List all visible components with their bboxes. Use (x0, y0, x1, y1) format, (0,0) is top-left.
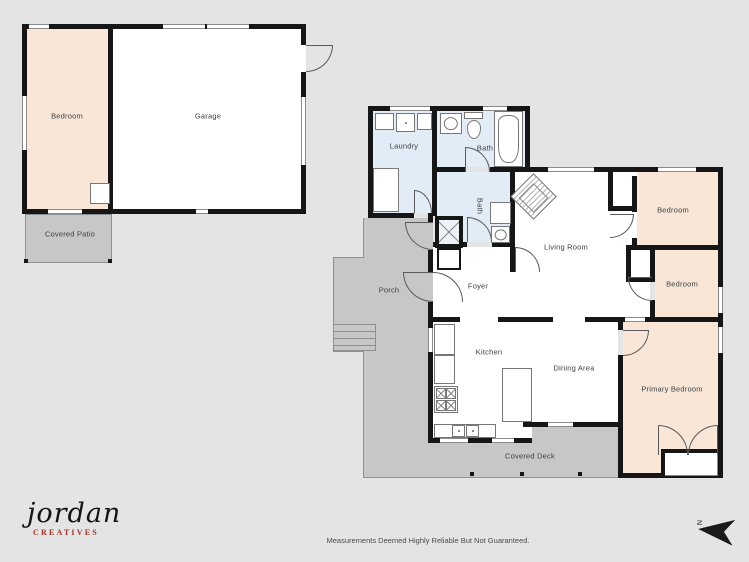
burner (446, 400, 456, 411)
covered-patio-area (25, 214, 112, 263)
wall (428, 213, 433, 222)
floor-plan: Bedroom Garage Covered Patio Laundry Bat… (0, 0, 749, 562)
wall (437, 167, 465, 172)
window (548, 167, 594, 172)
wall (432, 106, 437, 216)
window (428, 328, 433, 352)
burner (436, 400, 446, 411)
room-label-primary-bedroom: Primary Bedroom (641, 385, 702, 394)
window (301, 97, 306, 165)
logo-creatives: CREATIVES (33, 528, 99, 537)
window (29, 24, 49, 29)
logo-jordan: jordan (27, 498, 121, 529)
room-label-foyer: Foyer (468, 282, 488, 291)
post (520, 472, 524, 476)
foyer-closet (437, 248, 461, 270)
disclaimer-text: Measurements Deemed Highly Reliable But … (326, 536, 529, 545)
window (548, 422, 573, 427)
burner (436, 388, 446, 399)
wall (618, 322, 623, 330)
toilet-icon (464, 112, 483, 119)
north-label: N (695, 520, 702, 525)
room-label-garage: Garage (195, 112, 221, 121)
room-label-kitchen: Kitchen (476, 348, 502, 357)
post (470, 472, 474, 476)
wall (525, 106, 530, 172)
room-label-bedroom-1: Bedroom (657, 206, 689, 215)
kitchen-counter (434, 324, 455, 355)
window (163, 24, 205, 29)
kitchen-counter (434, 424, 496, 438)
room-label-porch: Porch (379, 286, 400, 295)
window (718, 327, 723, 353)
post (578, 472, 582, 476)
wall (498, 317, 553, 322)
kitchen-sink-icon (452, 425, 465, 437)
burner (446, 388, 456, 399)
wall (650, 300, 655, 317)
window (48, 209, 82, 214)
post (24, 259, 28, 263)
wall (618, 355, 623, 478)
dryer-icon (417, 113, 432, 130)
wall (428, 250, 433, 272)
window (207, 24, 249, 29)
wall (626, 245, 723, 250)
kitchen-sink-icon (466, 425, 479, 437)
room-label-bedroom-2: Bedroom (666, 280, 698, 289)
room-label-bedroom-a: Bedroom (51, 112, 83, 121)
window (658, 167, 696, 172)
shower-icon (435, 216, 463, 248)
washer-icon (375, 113, 394, 130)
stairs-icon (333, 324, 376, 351)
kitchen-peninsula (502, 368, 532, 422)
room-label-laundry: Laundry (390, 142, 419, 151)
room-label-bath-2: Bath (476, 198, 485, 214)
bath-cabinet (490, 202, 511, 224)
window (196, 209, 208, 214)
washer-icon (396, 113, 415, 132)
window (625, 317, 645, 322)
wall (428, 302, 433, 443)
door-arc (306, 45, 333, 72)
wall (368, 213, 414, 218)
room-label-covered-patio: Covered Patio (45, 230, 95, 239)
closet (90, 183, 110, 204)
closet-bedroom-1 (613, 177, 632, 206)
window (22, 96, 27, 150)
sink-icon (440, 113, 462, 134)
window (492, 438, 514, 443)
sink-icon (491, 226, 510, 243)
room-label-covered-deck: Covered Deck (505, 452, 555, 461)
utility-counter (373, 168, 399, 212)
wall (108, 29, 113, 209)
wall (632, 176, 637, 212)
window (440, 438, 468, 443)
stove-icon (434, 386, 458, 413)
window (390, 106, 430, 111)
wall (650, 250, 655, 277)
room-label-living-room: Living Room (544, 243, 588, 252)
wall (632, 238, 637, 245)
primary-step-box (665, 453, 718, 476)
room-label-bath-1: Bath (477, 144, 493, 153)
bathtub-icon (498, 115, 519, 163)
room-label-dining-area: Dining Area (554, 364, 595, 373)
closet-bedroom-2 (631, 250, 650, 277)
wall (433, 317, 460, 322)
kitchen-counter (434, 355, 455, 384)
window (718, 287, 723, 313)
post (108, 259, 112, 263)
